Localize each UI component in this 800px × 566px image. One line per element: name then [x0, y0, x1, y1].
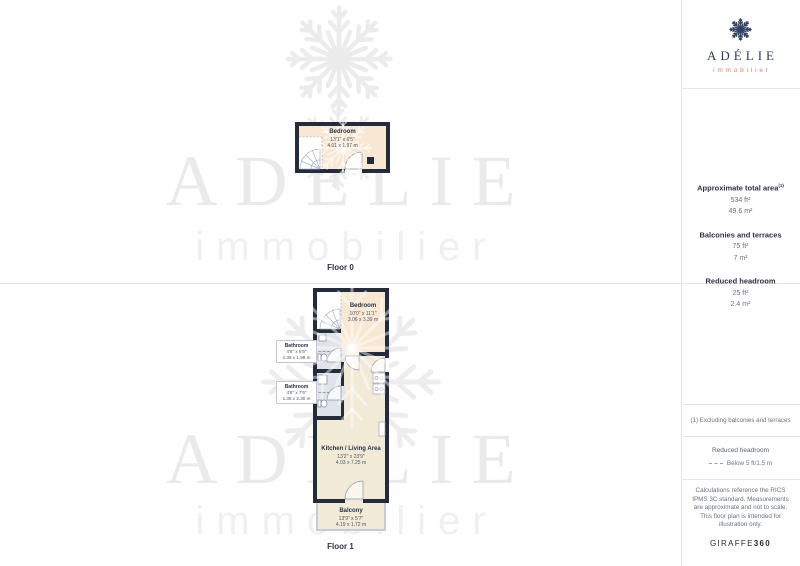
room-dim-metric: 1.38 x 2.30 m: [277, 396, 316, 402]
stat-imperial: 75 ft²: [681, 241, 800, 253]
floor0-label: Floor 0: [0, 263, 681, 272]
floor0-plan: [295, 122, 390, 173]
legend-item: Below 5 ft/1.5 m: [727, 460, 772, 467]
callout-leader: [314, 392, 330, 393]
giraffe-360-text: 360: [754, 539, 771, 548]
stat-imperial: 25 ft²: [681, 288, 800, 300]
disclaimer: Calculations reference the RICS IPMS 3C …: [681, 487, 800, 530]
dashed-line-icon: [709, 463, 723, 464]
floor1-label: Floor 1: [0, 542, 681, 551]
stat-metric: 49.6 m²: [681, 206, 800, 218]
floorplan-page: ADÉLIE immobilier ADÉLIE immobilier Bedr…: [0, 0, 800, 566]
legend-title: Reduced headroom: [681, 447, 800, 454]
sidebar-section-divider: [681, 88, 800, 89]
stat-total-area: Approximate total area(1) 534 ft² 49.6 m…: [681, 179, 800, 218]
reduced-headroom-legend: Reduced headroom Below 5 ft/1.5 m: [681, 437, 800, 480]
snowflake-watermark: [283, 3, 395, 115]
footnote: (1) Excluding balconies and terraces: [681, 404, 800, 437]
stat-reduced-headroom: Reduced headroom 25 ft² 2.4 m²: [681, 272, 800, 311]
legend-row: Below 5 ft/1.5 m: [681, 460, 800, 467]
room-dim-metric: 1.38 x 1.98 m: [277, 355, 316, 361]
wall-block: [367, 157, 374, 164]
area-stats: Approximate total area(1) 534 ft² 49.6 m…: [681, 179, 800, 319]
stat-label: Balconies and terraces: [681, 226, 800, 242]
stat-label: Approximate total area(1): [681, 179, 800, 195]
stat-metric: 2.4 m²: [681, 299, 800, 311]
callout-leader: [314, 351, 330, 352]
stat-imperial: 534 ft²: [681, 195, 800, 207]
floor0-stair-area: [299, 137, 322, 169]
room-name: Bathroom: [277, 384, 316, 390]
brand-subtitle: immobilier: [681, 67, 800, 74]
brand-logo: ADÉLIE immobilier: [681, 18, 800, 74]
stat-metric: 7 m²: [681, 253, 800, 265]
stat-balconies: Balconies and terraces 75 ft² 7 m²: [681, 226, 800, 265]
floor1-balcony-fill: [317, 501, 385, 530]
room-dim-imperial: 4'6" x 6'5": [277, 349, 316, 355]
floor1-bathroom1-callout: Bathroom 4'6" x 6'5" 1.38 x 1.98 m: [276, 340, 317, 363]
watermark-brand-subtitle: immobilier: [0, 226, 681, 268]
stat-label: Reduced headroom: [681, 272, 800, 288]
room-dim-imperial: 4'6" x 7'6": [277, 390, 316, 396]
giraffe-text: GIRAFFE: [710, 539, 754, 548]
brand-name: ADÉLIE: [681, 48, 800, 64]
giraffe360-brand: GIRAFFE360: [681, 539, 800, 548]
floor1-bathroom2-callout: Bathroom 4'6" x 7'6" 1.38 x 2.30 m: [276, 381, 317, 404]
snowflake-icon: [729, 18, 752, 41]
room-name: Bathroom: [277, 343, 316, 349]
floor1-plan: [313, 288, 389, 531]
floor-section-divider: [0, 283, 800, 284]
